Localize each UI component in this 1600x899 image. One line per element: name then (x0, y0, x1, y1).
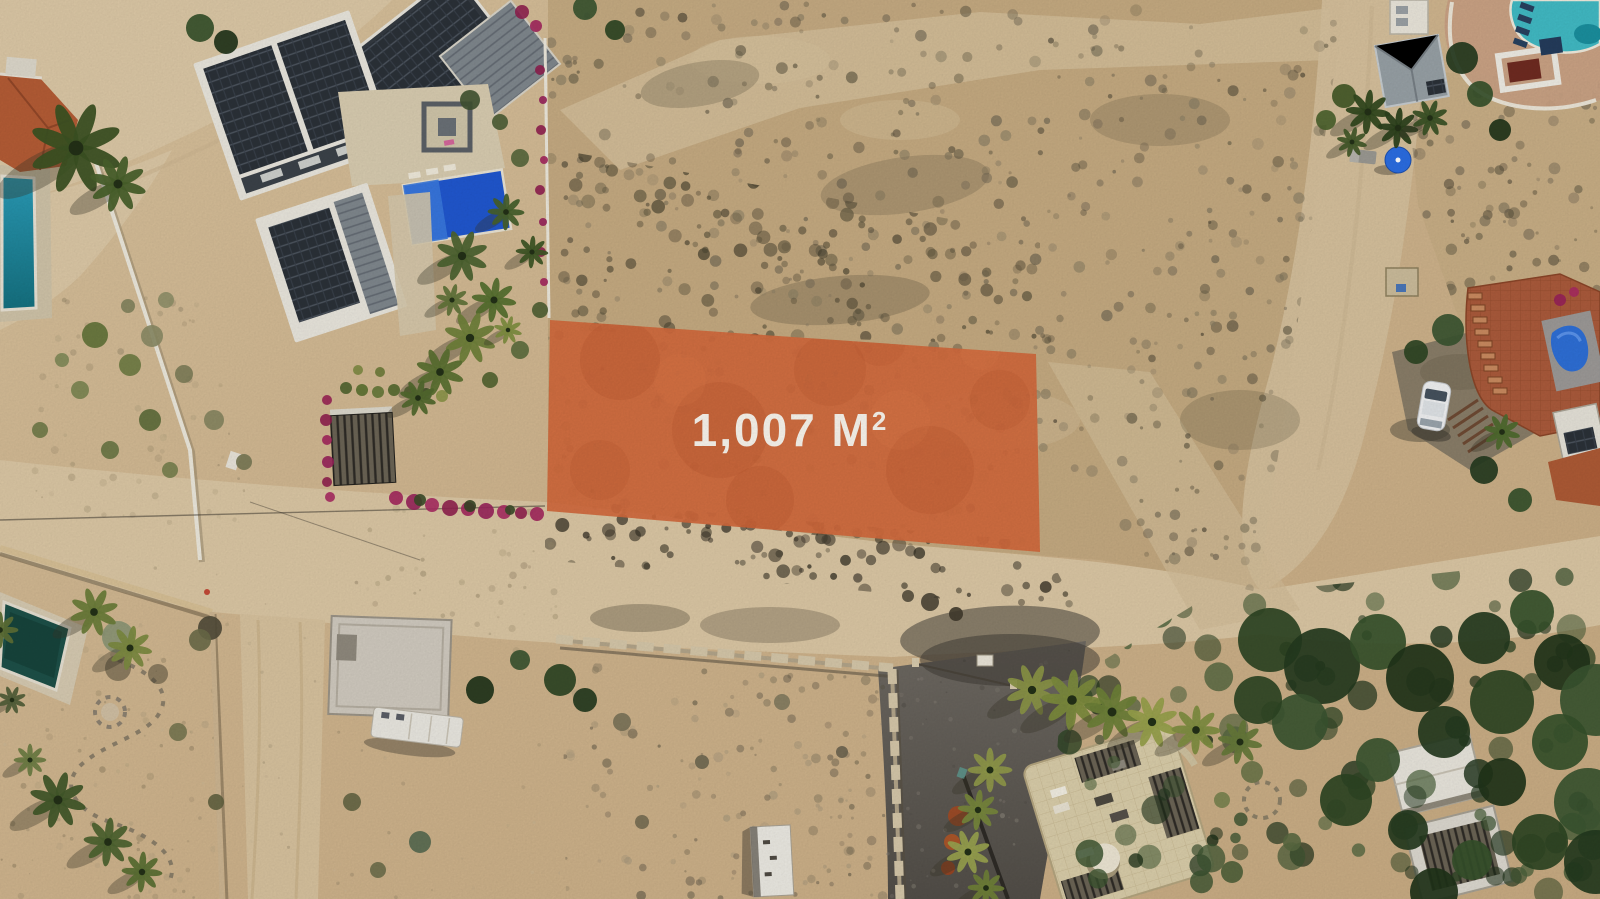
aerial-photo: 1,007 M2 (0, 0, 1600, 899)
aerial-photo-canvas: 1,007 M2 (0, 0, 1600, 899)
photo-grain (0, 0, 1600, 899)
